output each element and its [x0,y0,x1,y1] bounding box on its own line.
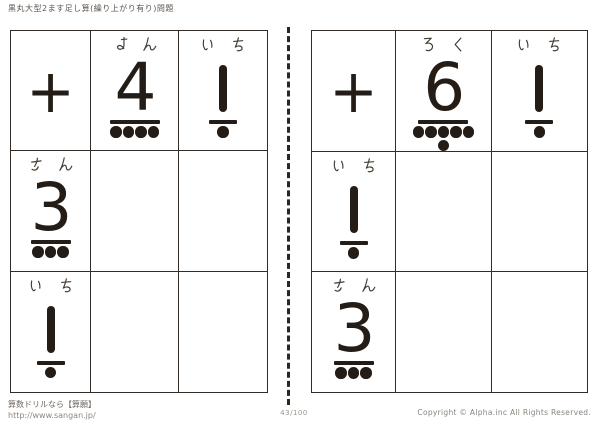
digit-one-bar [535,65,543,112]
footer-site-name: 算数ドリルなら【算願】 [8,399,96,410]
dot-row [45,367,57,379]
footer-url[interactable]: http://www.sangan.jp/ [8,410,96,421]
col-header-cell: 6 [396,31,492,152]
digit-one-bar [350,186,358,233]
col-header-cell: 4 [91,31,179,151]
page-title: 黒丸大型2ます足し算(繰り上がり有り)問題 [8,3,174,14]
answer-cell [492,152,588,272]
reading-label [26,277,76,297]
counting-dot [348,247,360,259]
page-number: 43/100 [262,409,326,417]
digit-underline [37,361,65,365]
counting-dot [123,126,135,138]
digit-underline [418,120,468,124]
answer-cell [91,151,179,271]
addend-card-1 [329,152,379,259]
kana-glyph [359,157,379,175]
counting-dot [534,126,546,138]
counting-dot [348,367,360,379]
dot-row [348,247,360,259]
row-header-cell: 3 [312,272,396,392]
answer-cell [179,151,267,271]
row-header-cell [312,152,396,272]
digit-one-bar [47,306,55,353]
reading-label [514,36,564,56]
digit-underline [209,120,237,124]
digit: 3 [334,300,374,358]
counting-dot [360,367,372,379]
answer-cell [396,272,492,392]
counting-dot [45,246,57,258]
addition-table-left: +43 [10,30,268,393]
operator-cell: + [11,31,91,151]
answer-cell [396,152,492,272]
digit: 3 [31,179,71,237]
counting-dot [148,126,160,138]
addend-card-6: 6 [413,31,475,151]
col-header-cell [179,31,267,151]
addition-table-right: +63 [311,30,588,393]
kana-glyph [56,277,76,295]
digit-underline [110,120,160,124]
plus-operator: + [26,60,75,121]
worksheet-page: 黒丸大型2ます足し算(繰り上がり有り)問題 +43 +63 算数ドリルなら【算願… [0,0,600,427]
digit-underline [334,361,374,365]
counting-dot [438,126,450,138]
footer-site-block: 算数ドリルなら【算願】 http://www.sangan.jp/ [8,399,96,421]
digit-underline [31,240,71,244]
dot-row [335,367,372,379]
addend-card-1 [514,31,564,138]
addend-card-4: 4 [110,31,160,138]
digit-one-bar [219,65,227,112]
copyright-text: Copyright © Alpha.inc All Rights Reserve… [417,408,591,417]
counting-dot [335,367,347,379]
counting-dot [463,126,475,138]
addend-card-1 [198,31,248,138]
counting-dot [110,126,122,138]
digit-underline [340,241,368,245]
counting-dot [45,367,57,379]
operator-cell: + [312,31,396,152]
digit: 6 [423,59,463,117]
kana-glyph [514,36,534,54]
digit-underline [525,120,553,124]
counting-dot [413,126,425,138]
row-header-cell [11,272,91,392]
counting-dot [217,126,229,138]
dot-row [217,126,229,138]
reading-label [198,36,248,56]
answer-cell [492,272,588,392]
answer-cell [179,272,267,392]
digit: 4 [115,59,155,117]
dot-row [413,126,475,138]
dot-row [438,140,450,152]
counting-dot [438,140,450,152]
dot-row [534,126,546,138]
kana-glyph [198,36,218,54]
dot-row [32,246,69,258]
dashed-divider [287,27,290,405]
kana-glyph [544,36,564,54]
kana-glyph [228,36,248,54]
counting-dot [425,126,437,138]
counting-dot [450,126,462,138]
col-header-cell [492,31,588,152]
plus-operator: + [329,61,378,122]
counting-dot [32,246,44,258]
kana-glyph [329,157,349,175]
addend-card-3: 3 [329,272,379,379]
row-header-cell: 3 [11,151,91,271]
reading-label [329,157,379,177]
addend-card-3: 3 [26,151,76,258]
dot-row [110,126,159,138]
counting-dot [57,246,69,258]
kana-glyph [26,277,46,295]
counting-dot [135,126,147,138]
answer-cell [91,272,179,392]
addend-card-1 [26,272,76,379]
